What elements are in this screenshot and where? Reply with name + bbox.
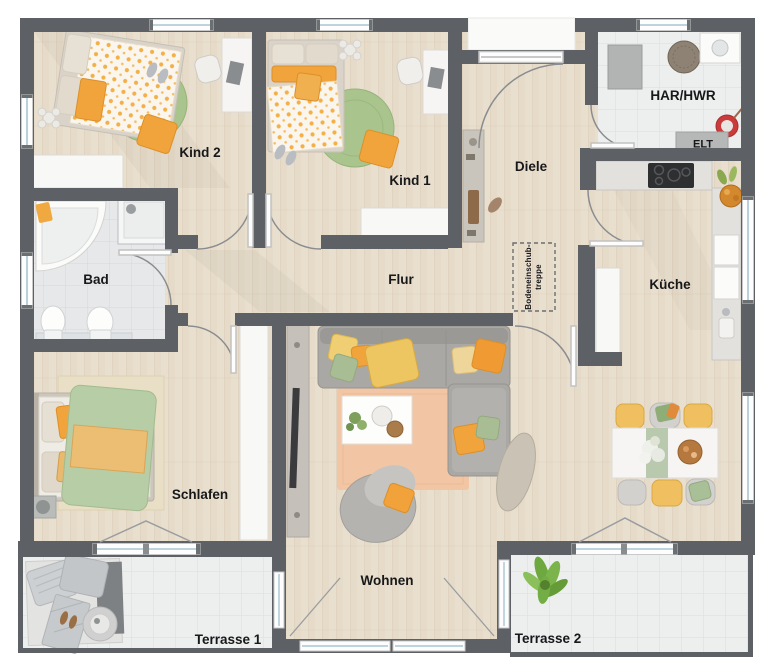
label-kind1: Kind 1 (389, 173, 431, 188)
dining-chair-yellow (652, 480, 682, 506)
shelf-deco (294, 512, 300, 518)
dining-furniture (612, 403, 718, 506)
sink-basin (719, 318, 734, 338)
wall-kueche-west-upper (580, 148, 596, 190)
label-kueche: Küche (649, 277, 691, 292)
entry-porch (468, 18, 575, 50)
wall-har-south (585, 148, 741, 161)
label-flur: Flur (388, 272, 414, 287)
label-har: HAR/HWR (650, 88, 715, 103)
schlafen-wardrobe (240, 325, 268, 540)
kitchen-cabinet (714, 267, 739, 299)
window-kind2-top (150, 20, 213, 31)
label-kind2: Kind 2 (179, 145, 220, 160)
toilet (41, 306, 65, 340)
terrace1-border-bottom (18, 648, 272, 653)
shelf-deco (294, 342, 300, 348)
floor-plan-svg: Bodeneinschub- treppe ELT (0, 0, 775, 671)
table-bowl (678, 440, 702, 464)
wall-kueche-west-lower (578, 245, 595, 365)
wall-top-left (20, 18, 468, 32)
window-har-top (637, 20, 690, 31)
wall-flur-north (321, 235, 448, 249)
dining-chair-yellow (616, 404, 644, 428)
label-terrasse1: Terrasse 1 (195, 632, 262, 647)
kind1-sideboard (361, 208, 451, 239)
side-table-tray (90, 614, 110, 634)
window-kueche-east (743, 197, 754, 303)
shower-drain (126, 204, 136, 214)
window-kind1-top (317, 20, 372, 31)
tray-cup (94, 618, 100, 624)
wall-bad-south (20, 339, 178, 352)
red-bucket-inside (721, 120, 733, 132)
coat-rack (463, 130, 484, 242)
wall-kind2-kind1 (252, 32, 266, 248)
bidet (87, 307, 113, 340)
sink-faucet (722, 308, 730, 316)
terrace1-furniture (26, 554, 125, 654)
nightstand-lamp (36, 500, 50, 514)
terrace1-border-left (18, 541, 23, 653)
label-diele: Diele (515, 159, 548, 174)
attic-ladder-label-2: treppe (534, 264, 543, 290)
heating-unit (608, 45, 642, 89)
window-bay-south-2 (393, 641, 465, 651)
floor-plan: Bodeneinschub- treppe ELT (0, 0, 775, 671)
dining-chair-gray (618, 480, 646, 505)
terrace2-border-right (748, 555, 753, 657)
wall-flur-north-stub (178, 235, 198, 249)
wall-har-west (585, 32, 598, 105)
wall-flur-south-stub (178, 313, 188, 326)
wall-schlafen-wohnen (272, 313, 286, 541)
dining-chair-yellow (684, 404, 712, 428)
coat-rack-deco (469, 138, 477, 146)
kitchen-cabinet (714, 235, 739, 265)
window-kind2-west (22, 95, 33, 148)
washing-machine-door (712, 40, 728, 56)
terrace2-border-bottom (510, 652, 753, 657)
shoes (466, 154, 475, 160)
kind1-bed (267, 40, 344, 153)
window-bay-west (274, 572, 284, 628)
attic-ladder-label-1: Bodeneinschub- (524, 244, 533, 310)
window-essen-east (743, 393, 754, 503)
window-bay-east (499, 560, 509, 628)
label-wohnen: Wohnen (361, 573, 414, 588)
coffee-table (342, 396, 412, 444)
coat-rack-bench (468, 190, 479, 224)
table-bowl-item (683, 446, 689, 452)
window-bay-south-1 (300, 641, 390, 651)
shoes (467, 230, 476, 236)
label-schlafen: Schlafen (172, 487, 228, 502)
kitchen-tall-cabinet (596, 268, 620, 354)
window-bad-west (22, 253, 33, 308)
label-terrasse2: Terrasse 2 (515, 631, 582, 646)
wood-floor-bay (285, 541, 497, 639)
label-bad: Bad (83, 272, 109, 287)
wall-kind1-diele (448, 32, 462, 248)
wall-bad-north (20, 188, 178, 201)
double-bed (26, 384, 157, 511)
table-bowl-item (691, 452, 697, 458)
wall-kueche-stub (578, 352, 622, 366)
kind2-wardrobe (28, 155, 123, 188)
wall-bad-east-upper (165, 188, 178, 253)
